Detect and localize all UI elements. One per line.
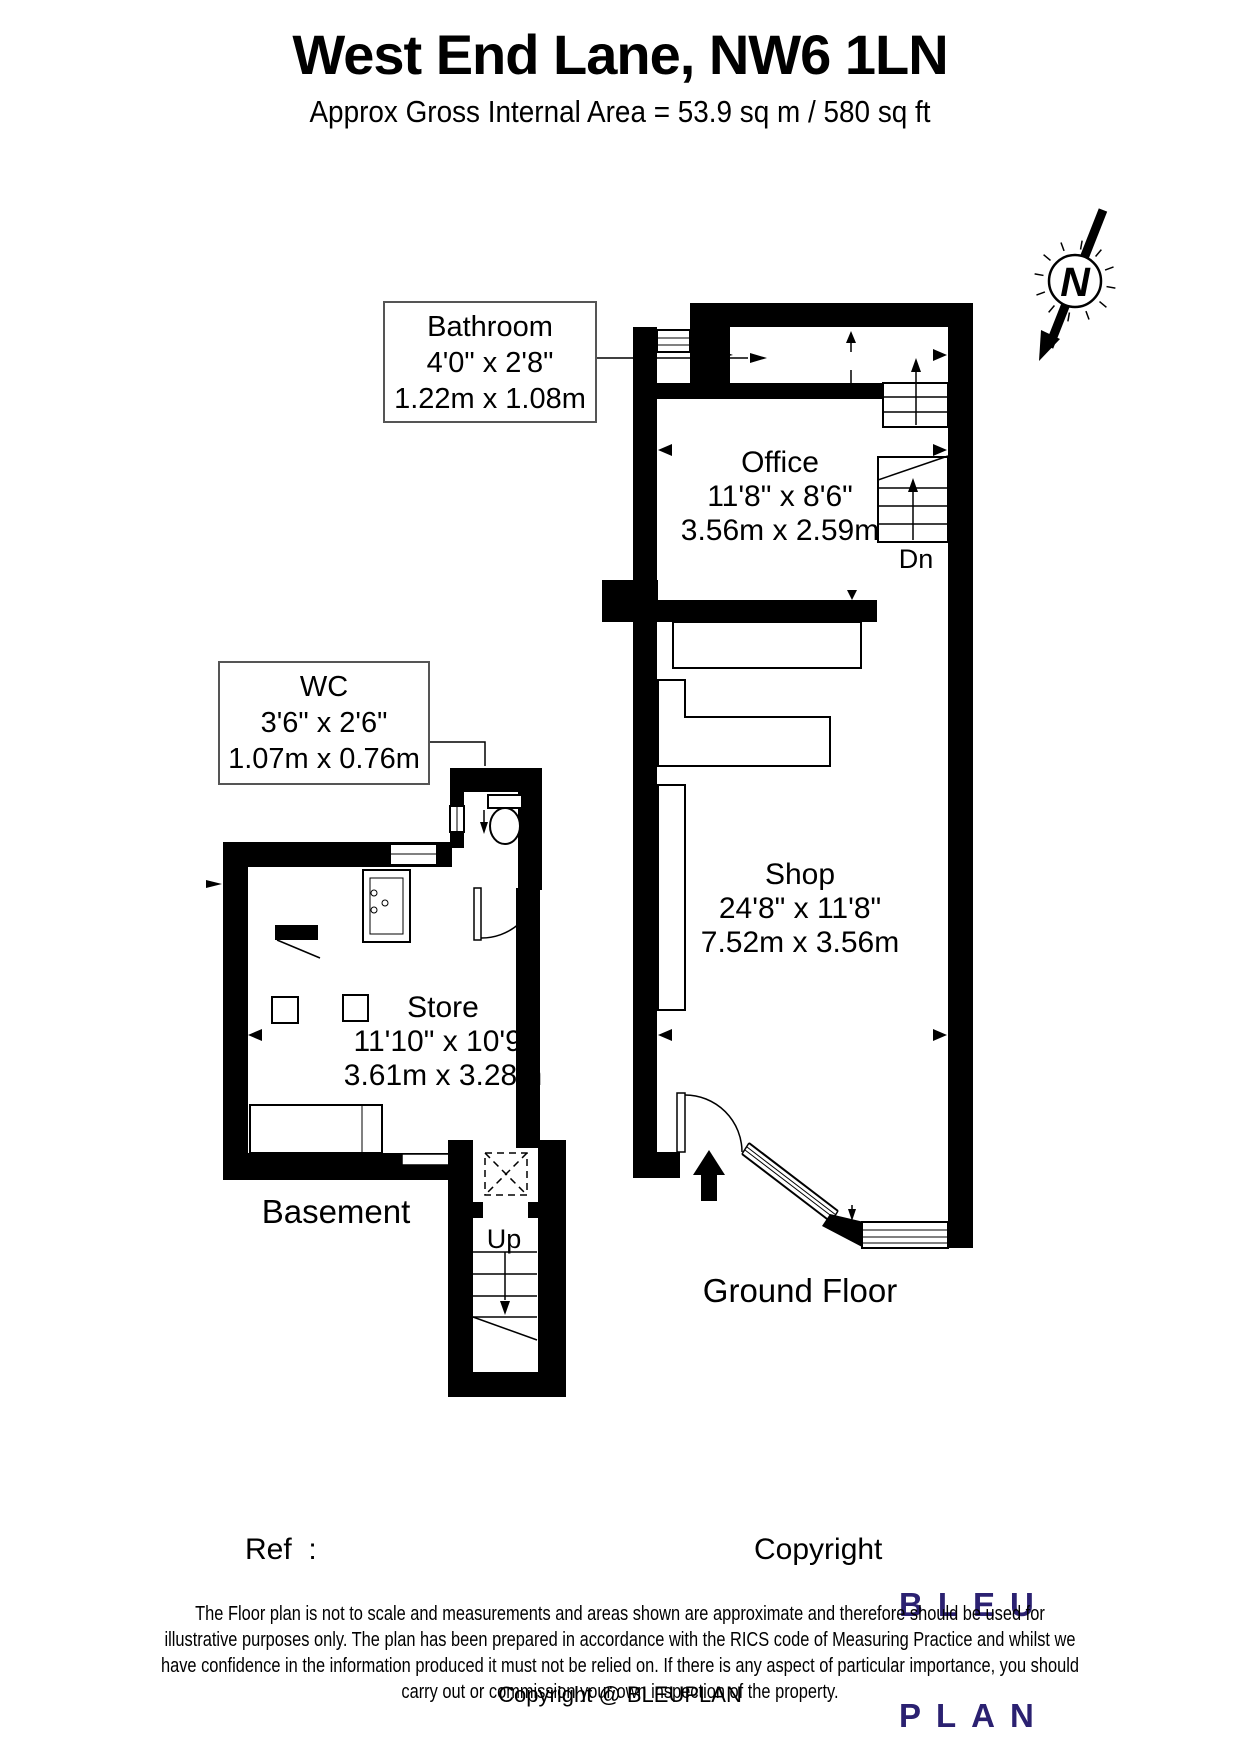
page-title: West End Lane, NW6 1LN (0, 22, 1240, 87)
shop-label: Shop 24'8" x 11'8" 7.52m x 3.56m (701, 858, 899, 960)
north-arrow-icon: N (1035, 210, 1116, 361)
shop-name: Shop (701, 858, 899, 892)
ground-floor-plan (597, 303, 973, 1248)
basement-label: Basement (262, 1193, 411, 1231)
wc-size-metric: 1.07m x 0.76m (220, 741, 428, 777)
store-size-metric: 3.61m x 3.28m (344, 1059, 542, 1093)
store-name: Store (344, 991, 542, 1025)
wc-label-box: WC 3'6" x 2'6" 1.07m x 0.76m (218, 661, 430, 785)
disclaimer-line3: have confidence in the information produ… (112, 1653, 1129, 1679)
store-label: Store 11'10" x 10'9" 3.61m x 3.28m (344, 991, 542, 1093)
floorplan-drawing: N (0, 0, 1240, 1755)
page-subtitle: Approx Gross Internal Area = 53.9 sq m /… (62, 94, 1178, 130)
store-size-imperial: 11'10" x 10'9" (344, 1025, 542, 1059)
compass-n: N (1060, 259, 1091, 305)
wc-size-imperial: 3'6" x 2'6" (220, 705, 428, 741)
ref-label: Ref : (245, 1533, 317, 1567)
copyright-line: Copyright @ BLEUPLAN (0, 1682, 1240, 1708)
bathroom-label-box: Bathroom 4'0" x 2'8" 1.22m x 1.08m (383, 301, 597, 423)
shop-size-metric: 7.52m x 3.56m (701, 926, 899, 960)
office-label: Office 11'8" x 8'6" 3.56m x 2.59m (681, 446, 879, 548)
copyright-label: Copyright (754, 1533, 882, 1567)
ground-floor-label: Ground Floor (703, 1272, 897, 1310)
bathroom-size-metric: 1.22m x 1.08m (385, 381, 595, 417)
disclaimer-line2: illustrative purposes only. The plan has… (112, 1627, 1129, 1653)
stairs-up-label: Up (487, 1224, 522, 1255)
office-size-imperial: 11'8" x 8'6" (681, 480, 879, 514)
bathroom-size-imperial: 4'0" x 2'8" (385, 345, 595, 381)
floorplan-page: N (0, 0, 1240, 1755)
shop-size-imperial: 24'8" x 11'8" (701, 892, 899, 926)
wc-name: WC (220, 669, 428, 705)
office-size-metric: 3.56m x 2.59m (681, 514, 879, 548)
stairs-down-label: Dn (899, 544, 934, 575)
bathroom-name: Bathroom (385, 309, 595, 345)
disclaimer-line1: The Floor plan is not to scale and measu… (112, 1601, 1129, 1627)
wc-leader-line (430, 742, 485, 766)
office-name: Office (681, 446, 879, 480)
